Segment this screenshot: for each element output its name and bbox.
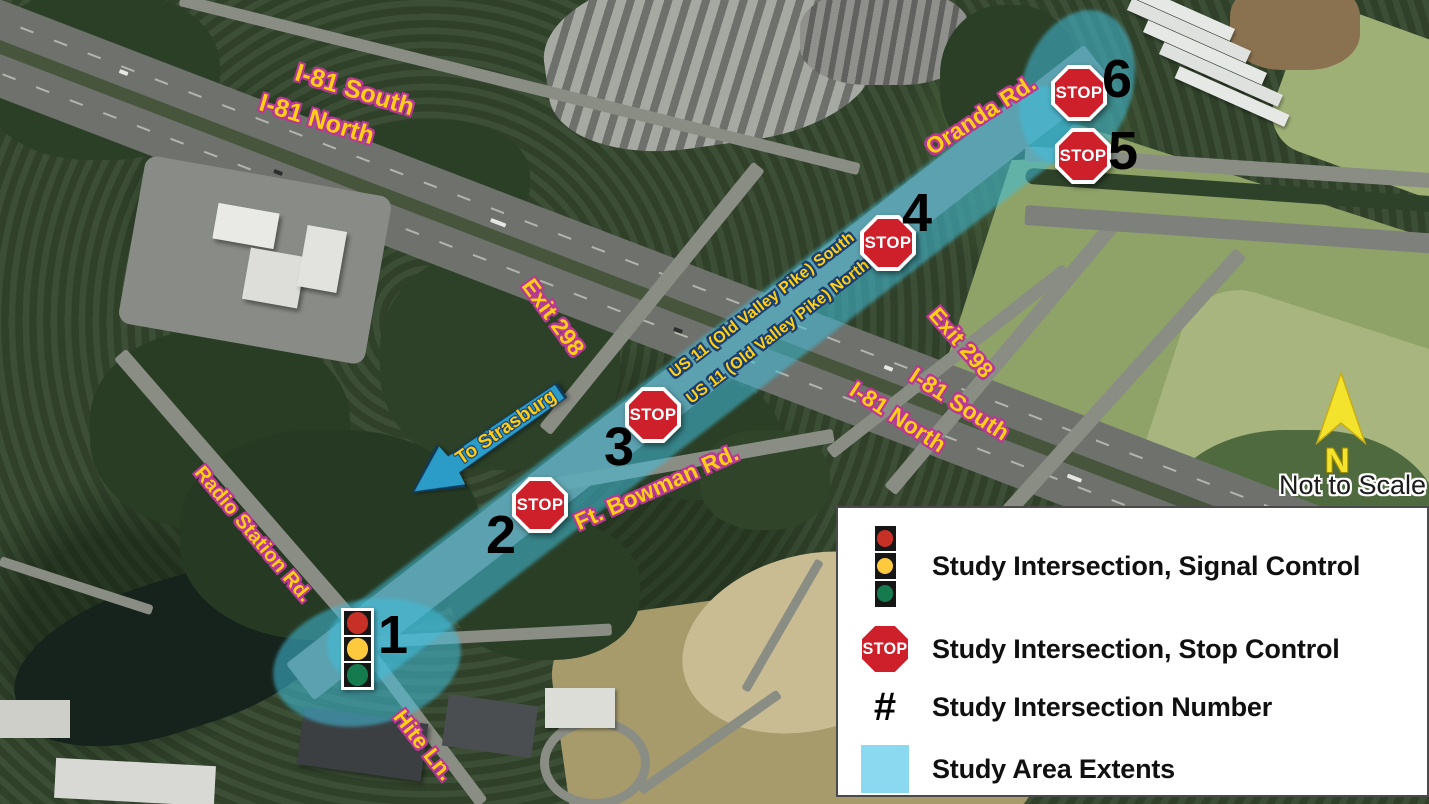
red-light [347,612,368,633]
townhouse-row [54,758,216,804]
traffic-signal-icon [872,523,899,610]
stop-sign-icon: STOP [858,622,912,676]
signal-cell [875,526,896,552]
stop-sign-5: STOP [1055,128,1111,184]
yellow-light [877,558,893,574]
legend-icon-cell [838,523,932,610]
stop-sign-face: STOP [629,391,678,440]
legend-row-signal: Study Intersection, Signal Control [838,524,1427,608]
legend-icon-cell [838,745,932,793]
number-symbol: # [874,685,896,730]
stop-sign-border: STOP [858,622,912,676]
townhouse-row [0,700,70,738]
signal-cell [344,611,371,635]
stop-sign-text: STOP [517,495,564,515]
vehicle [273,169,283,176]
signal-cell [344,663,371,687]
intersection-number-2: 2 [486,508,516,562]
stop-sign-text: STOP [630,405,677,425]
stop-sign-face: STOP [1059,132,1108,181]
legend-row-stop: STOP Study Intersection, Stop Control [838,616,1427,682]
truck-stop-building [242,248,306,309]
stop-sign-text: STOP [1056,83,1103,103]
red-light [877,530,893,546]
legend-icon-cell: # [838,685,932,730]
legend-icon-cell: STOP [838,622,932,676]
stop-sign-face: STOP [862,626,909,673]
intersection-number-1: 1 [378,608,408,662]
truckstop-access-road [0,556,154,615]
stop-sign-border: STOP [512,477,568,533]
stop-sign-face: STOP [1055,69,1104,118]
intersection-number-3: 3 [604,420,634,474]
vehicle [490,218,506,227]
not-to-scale-note: Not to Scale [1279,470,1426,501]
signal-cell [344,637,371,661]
intersection-number-5: 5 [1108,124,1138,178]
intersection-number-6: 6 [1102,52,1132,106]
stop-sign-2: STOP [512,477,568,533]
green-light [877,585,893,601]
study-area-map: I-81 South I-81 North Exit 298 US 11 (Ol… [0,0,1429,804]
commercial-building [442,694,538,758]
green-light [347,664,368,685]
stop-sign-6: STOP [1051,65,1107,121]
cul-de-sac-loop [540,718,650,804]
north-arrow-icon [1312,370,1370,450]
vehicle [884,365,894,372]
legend-row-study-area: Study Area Extents [838,738,1427,800]
vehicle [119,69,129,76]
signal-cell [875,553,896,579]
legend-label-number: Study Intersection Number [932,692,1272,723]
signal-cell [875,581,896,607]
yellow-light [347,638,368,659]
legend-label-study-area: Study Area Extents [932,754,1175,785]
dirt-patch [1230,0,1360,70]
stop-sign-text: STOP [1060,146,1107,166]
legend-label-signal: Study Intersection, Signal Control [932,551,1360,582]
legend-label-stop: Study Intersection, Stop Control [932,634,1340,665]
stop-sign-text: STOP [862,640,907,659]
vehicle [1067,474,1082,483]
legend: Study Intersection, Signal Control STOP … [836,506,1429,797]
legend-row-number: # Study Intersection Number [838,676,1427,738]
stop-sign-border: STOP [1055,128,1111,184]
intersection-number-4: 4 [902,186,932,240]
traffic-signal-icon-1 [341,608,374,690]
stop-sign-face: STOP [516,481,565,530]
commercial-building [545,688,615,728]
study-area-swatch [861,745,909,793]
stop-sign-border: STOP [1051,65,1107,121]
